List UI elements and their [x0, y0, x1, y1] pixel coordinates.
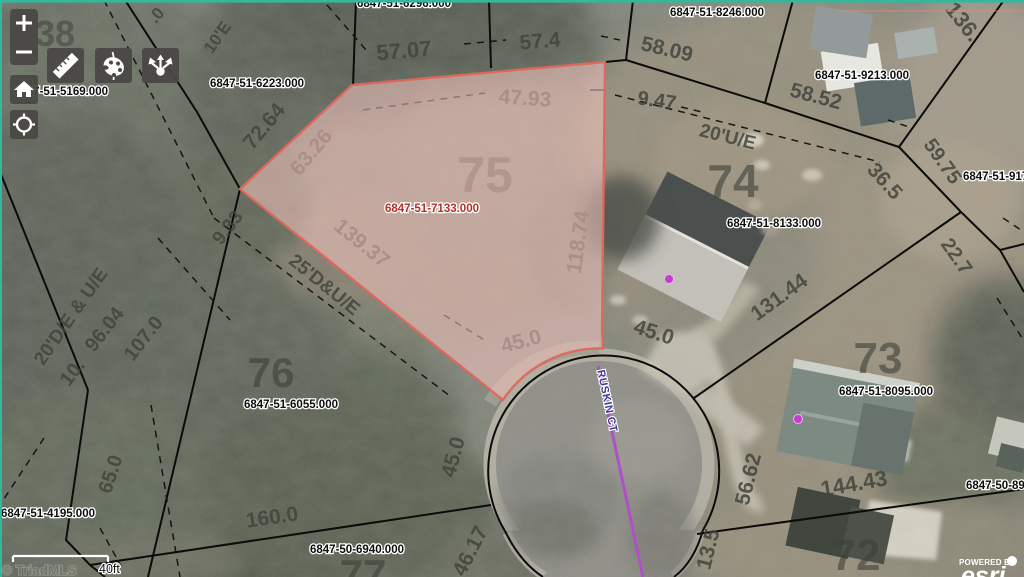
svg-text:76: 76: [248, 349, 295, 396]
svg-text:40ft: 40ft: [99, 562, 120, 576]
svg-text:6847-51-8246.000: 6847-51-8246.000: [670, 7, 764, 19]
svg-text:6847-51-6223.000: 6847-51-6223.000: [210, 78, 304, 90]
svg-text:6847-51-8095.000: 6847-51-8095.000: [839, 386, 933, 398]
svg-text:6847-51-6055.000: 6847-51-6055.000: [244, 399, 338, 411]
svg-text:38: 38: [35, 13, 75, 54]
svg-text:6847-51-4195.000: 6847-51-4195.000: [1, 508, 95, 520]
svg-text:74: 74: [707, 155, 759, 207]
svg-text:6847-50-89: 6847-50-89: [966, 480, 1024, 492]
svg-text:6847-51-917: 6847-51-917: [963, 171, 1024, 183]
svg-text:73: 73: [854, 334, 903, 383]
svg-text:72: 72: [832, 531, 881, 577]
svg-text:6847-51-9213.000: 6847-51-9213.000: [815, 70, 909, 82]
svg-text:6847-51-8133.000: 6847-51-8133.000: [727, 218, 821, 230]
svg-text:57.4: 57.4: [519, 28, 562, 55]
svg-text:6847-50-6940.000: 6847-50-6940.000: [310, 544, 404, 556]
svg-text:esri: esri: [961, 562, 1007, 577]
svg-text:57.07: 57.07: [375, 36, 432, 66]
svg-text:6847-51-7133.000: 6847-51-7133.000: [385, 203, 479, 215]
svg-text:© TriadMLS: © TriadMLS: [2, 563, 76, 577]
